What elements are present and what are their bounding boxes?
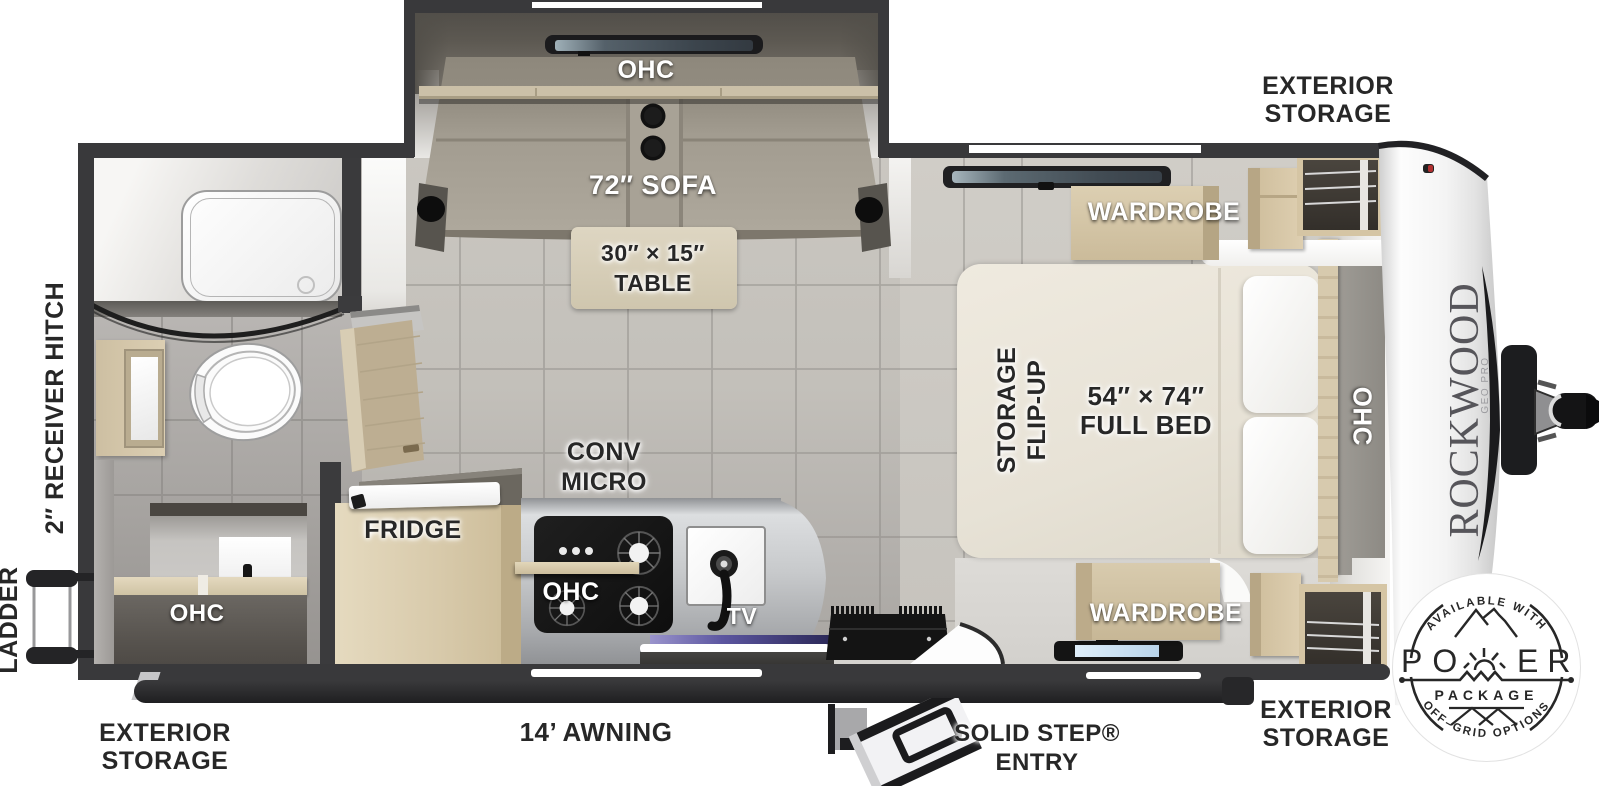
svg-text:PO: PO xyxy=(1401,643,1467,679)
svg-text:PACKAGE: PACKAGE xyxy=(1435,687,1539,703)
svg-text:ER: ER xyxy=(1517,643,1579,679)
